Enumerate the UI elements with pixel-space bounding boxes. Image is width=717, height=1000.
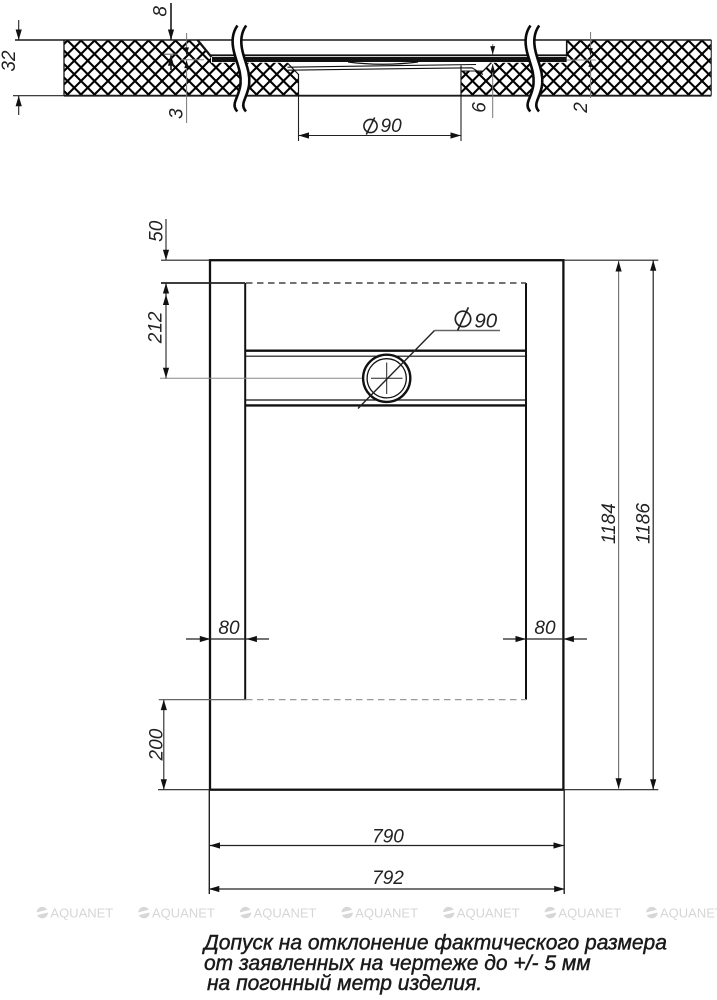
svg-text:6: 6 (470, 102, 491, 113)
svg-text:50: 50 (146, 220, 167, 242)
svg-text:790: 790 (372, 827, 404, 848)
svg-text:90: 90 (381, 116, 403, 137)
svg-text:80: 80 (534, 618, 556, 639)
svg-text:1184: 1184 (599, 503, 620, 544)
svg-text:90: 90 (474, 310, 497, 333)
svg-text:AQUANET: AQUANET (50, 906, 113, 921)
svg-text:200: 200 (147, 728, 168, 761)
svg-text:1186: 1186 (634, 503, 655, 544)
svg-text:3: 3 (167, 108, 188, 119)
svg-text:8: 8 (150, 6, 171, 17)
svg-text:2: 2 (571, 102, 592, 114)
svg-text:на погонный метр изделия.: на погонный метр изделия. (207, 972, 482, 995)
svg-text:32: 32 (0, 50, 20, 72)
svg-text:212: 212 (145, 311, 166, 344)
svg-text:80: 80 (218, 618, 240, 639)
svg-text:792: 792 (372, 868, 404, 889)
